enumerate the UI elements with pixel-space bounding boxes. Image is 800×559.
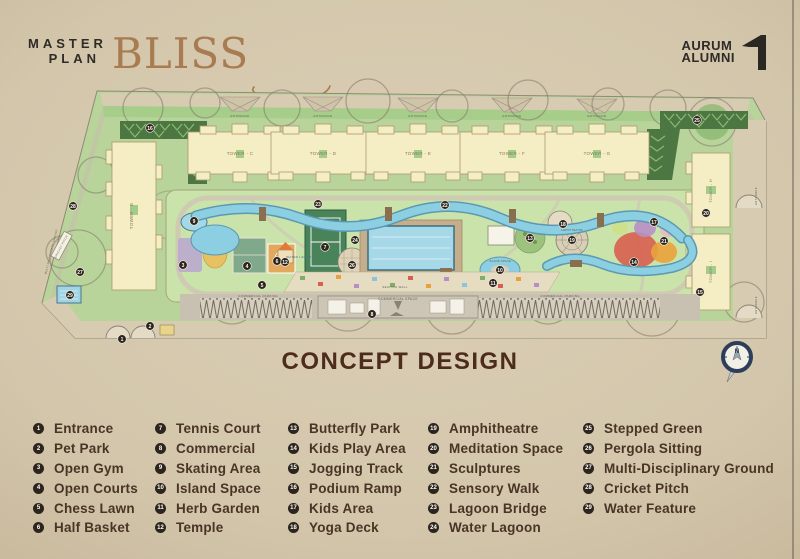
map-marker: 20 xyxy=(702,209,711,218)
legend-item-label: Kids Area xyxy=(309,501,373,516)
map-marker: 8 xyxy=(368,310,377,319)
map-marker: 4 xyxy=(243,262,252,271)
svg-text:13: 13 xyxy=(527,236,533,242)
legend-item: 1Entrance xyxy=(33,419,138,439)
legend-item: 15Jogging Track xyxy=(288,459,406,479)
svg-text:4: 4 xyxy=(246,264,249,270)
map-marker: 21 xyxy=(660,237,669,246)
legend-item-label: Cricket Pitch xyxy=(604,481,689,496)
svg-text:29: 29 xyxy=(67,293,73,299)
svg-text:8: 8 xyxy=(371,312,374,318)
svg-text:15: 15 xyxy=(697,290,703,296)
legend-item: 19Amphitheatre xyxy=(428,419,563,439)
legend-item: 14Kids Play Area xyxy=(288,439,406,459)
svg-text:11: 11 xyxy=(490,281,496,287)
legend-item-label: Jogging Track xyxy=(309,461,403,476)
legend-item-label: Water Lagoon xyxy=(449,520,541,535)
map-label: COMMERCIAL PARKING xyxy=(238,294,278,298)
legend-number-bullet: 15 xyxy=(288,463,299,474)
svg-text:7: 7 xyxy=(324,245,327,251)
legend-item: 6Half Basket xyxy=(33,518,138,538)
legend-number-bullet: 8 xyxy=(155,443,166,454)
legend-number-bullet: 18 xyxy=(288,522,299,533)
map-marker: 24 xyxy=(351,236,360,245)
map-marker: 27 xyxy=(76,268,85,277)
legend-column: 19Amphitheatre20Meditation Space21Sculpt… xyxy=(428,419,563,538)
legend-item: 25Stepped Green xyxy=(583,419,774,439)
legend-number-bullet: 22 xyxy=(428,483,439,494)
right-edge-line xyxy=(792,0,794,559)
legend-item-label: Pet Park xyxy=(54,441,110,456)
commercial-parking-right xyxy=(478,298,660,318)
legend-item: 5Chess Lawn xyxy=(33,498,138,518)
legend-number-bullet: 26 xyxy=(583,443,594,454)
map-marker: 3 xyxy=(179,261,188,270)
legend-item: 16Podium Ramp xyxy=(288,478,406,498)
legend-item-label: Multi-Disciplinary Ground xyxy=(604,461,774,476)
svg-text:20: 20 xyxy=(703,211,709,217)
map-marker: 22 xyxy=(441,201,450,210)
legend-number-bullet: 29 xyxy=(583,503,594,514)
legend-item: 23Lagoon Bridge xyxy=(428,498,563,518)
map-marker: 19 xyxy=(568,236,577,245)
svg-text:2: 2 xyxy=(149,324,152,330)
legend-item-label: Island Space xyxy=(176,481,261,496)
map-marker: 29 xyxy=(66,291,75,300)
legend-item-label: Chess Lawn xyxy=(54,501,135,516)
map-label: WATER LAGOON xyxy=(286,255,314,259)
legend-item: 22Sensory Walk xyxy=(428,478,563,498)
legend-item-label: Water Feature xyxy=(604,501,696,516)
lagoon-pond xyxy=(191,225,239,255)
legend-item-label: Meditation Space xyxy=(449,441,563,456)
map-marker: 12 xyxy=(281,258,290,267)
svg-text:22: 22 xyxy=(442,203,448,209)
map-label: ENTRANCE xyxy=(231,114,250,118)
map-label: TOWER - F xyxy=(499,151,525,156)
map-label: AMPHITHEATRE xyxy=(561,229,583,232)
legend-number-bullet: 14 xyxy=(288,443,299,454)
svg-text:10: 10 xyxy=(497,268,503,274)
legend-number-bullet: 4 xyxy=(33,483,44,494)
map-marker: 2 xyxy=(146,322,155,331)
clubhouse xyxy=(488,226,514,245)
legend-item-label: Butterfly Park xyxy=(309,421,400,436)
legend-column: 25Stepped Green26Pergola Sitting27Multi-… xyxy=(583,419,774,518)
legend-number-bullet: 5 xyxy=(33,503,44,514)
legend-item: 24Water Lagoon xyxy=(428,518,563,538)
svg-text:17: 17 xyxy=(651,220,657,226)
map-label: TOWER - C xyxy=(227,151,254,156)
tower-b xyxy=(106,142,162,290)
map-label: COMMERCIAL PARKING xyxy=(540,294,580,298)
svg-text:5: 5 xyxy=(261,283,264,289)
svg-text:26: 26 xyxy=(349,263,355,269)
map-marker: 15 xyxy=(696,288,705,297)
map-label: ENTRANCE xyxy=(754,187,758,205)
legend-number-bullet: 1 xyxy=(33,423,44,434)
legend-number-bullet: 23 xyxy=(428,503,439,514)
legend-item: 10Island Space xyxy=(155,478,261,498)
legend-item-label: Open Gym xyxy=(54,461,124,476)
legend-item-label: Commercial xyxy=(176,441,255,456)
legend-item-label: Lagoon Bridge xyxy=(449,501,547,516)
legend-item: 11Herb Garden xyxy=(155,498,261,518)
legend-item-label: Open Courts xyxy=(54,481,138,496)
svg-text:23: 23 xyxy=(315,202,321,208)
legend-item-label: Sensory Walk xyxy=(449,481,539,496)
legend-item: 28Cricket Pitch xyxy=(583,478,774,498)
map-marker: 7 xyxy=(321,243,330,252)
legend-item-label: Sculptures xyxy=(449,461,521,476)
svg-text:25: 25 xyxy=(694,118,700,124)
legend-number-bullet: 21 xyxy=(428,463,439,474)
map-marker: 18 xyxy=(559,220,568,229)
legend-column: 1Entrance2Pet Park3Open Gym4Open Courts5… xyxy=(33,419,138,538)
legend-number-bullet: 13 xyxy=(288,423,299,434)
legend-number-bullet: 27 xyxy=(583,463,594,474)
legend-item: 27Multi-Disciplinary Ground xyxy=(583,459,774,479)
legend-item: 20Meditation Space xyxy=(428,439,563,459)
map-marker: 14 xyxy=(630,258,639,267)
map-label: TOWER - I xyxy=(708,261,713,283)
svg-text:12: 12 xyxy=(282,260,288,266)
legend-number-bullet: 11 xyxy=(155,503,166,514)
legend-number-bullet: 6 xyxy=(33,522,44,533)
commercial-parking-left xyxy=(200,298,312,318)
legend-number-bullet: 12 xyxy=(155,522,166,533)
legend-item: 29Water Feature xyxy=(583,498,774,518)
legend-number-bullet: 24 xyxy=(428,522,439,533)
map-marker: 9 xyxy=(190,217,199,226)
sensory-walk xyxy=(284,272,560,292)
svg-text:9: 9 xyxy=(193,219,196,225)
legend-item-label: Temple xyxy=(176,520,223,535)
map-label: TOWER - D xyxy=(310,151,337,156)
map-label: ISLAND SPACE xyxy=(489,259,511,263)
map-marker: 16 xyxy=(146,124,155,133)
map-marker: 17 xyxy=(650,218,659,227)
legend-item: 7Tennis Court xyxy=(155,419,261,439)
legend: 1Entrance2Pet Park3Open Gym4Open Courts5… xyxy=(0,419,800,549)
map-label: ENTRANCE xyxy=(588,114,607,118)
svg-text:21: 21 xyxy=(661,239,667,245)
legend-column: 13Butterfly Park14Kids Play Area15Joggin… xyxy=(288,419,406,538)
legend-item-label: Amphitheatre xyxy=(449,421,538,436)
map-marker: 26 xyxy=(348,261,357,270)
legend-item-label: Entrance xyxy=(54,421,113,436)
map-marker: 11 xyxy=(489,279,498,288)
map-label: ENTRANCE xyxy=(409,114,428,118)
svg-text:28: 28 xyxy=(70,204,76,210)
legend-item-label: Herb Garden xyxy=(176,501,260,516)
svg-text:27: 27 xyxy=(77,270,83,276)
svg-text:3: 3 xyxy=(182,263,185,269)
legend-item: 21Sculptures xyxy=(428,459,563,479)
legend-item: 18Yoga Deck xyxy=(288,518,406,538)
map-label: TOWER - B xyxy=(129,203,134,229)
legend-item-label: Yoga Deck xyxy=(309,520,379,535)
legend-item-label: Kids Play Area xyxy=(309,441,406,456)
legend-number-bullet: 19 xyxy=(428,423,439,434)
map-marker: 1 xyxy=(118,335,127,344)
legend-number-bullet: 25 xyxy=(583,423,594,434)
map-marker: 10 xyxy=(496,266,505,275)
map-label: TOWER - H xyxy=(708,179,713,203)
legend-number-bullet: 10 xyxy=(155,483,166,494)
legend-number-bullet: 9 xyxy=(155,463,166,474)
legend-item-label: Half Basket xyxy=(54,520,130,535)
legend-number-bullet: 28 xyxy=(583,483,594,494)
gate-booth xyxy=(160,325,174,335)
map-marker: 6 xyxy=(273,257,282,266)
svg-text:16: 16 xyxy=(147,126,153,132)
legend-number-bullet: 2 xyxy=(33,443,44,454)
map-label: TOWER - G xyxy=(584,151,611,156)
legend-number-bullet: 3 xyxy=(33,463,44,474)
legend-item: 17Kids Area xyxy=(288,498,406,518)
map-label: ENTRANCE xyxy=(314,114,333,118)
legend-item: 8Commercial xyxy=(155,439,261,459)
map-label: ENTRANCE xyxy=(754,296,758,314)
legend-item: 3Open Gym xyxy=(33,459,138,479)
legend-number-bullet: 16 xyxy=(288,483,299,494)
map-marker: 25 xyxy=(693,116,702,125)
map-marker: 23 xyxy=(314,200,323,209)
map-marker: 28 xyxy=(69,202,78,211)
map-label: COMMERCIAL SPACE xyxy=(378,297,418,301)
legend-item-label: Skating Area xyxy=(176,461,260,476)
legend-number-bullet: 17 xyxy=(288,503,299,514)
map-marker: 13 xyxy=(526,234,535,243)
legend-number-bullet: 20 xyxy=(428,443,439,454)
legend-item-label: Podium Ramp xyxy=(309,481,402,496)
legend-item-label: Tennis Court xyxy=(176,421,261,436)
legend-item: 4Open Courts xyxy=(33,478,138,498)
svg-text:1: 1 xyxy=(121,337,124,343)
svg-text:6: 6 xyxy=(276,259,279,265)
legend-item-label: Stepped Green xyxy=(604,421,703,436)
map-label: SEATING WALL xyxy=(382,285,407,289)
svg-text:18: 18 xyxy=(560,222,566,228)
legend-item: 9Skating Area xyxy=(155,459,261,479)
legend-item: 12Temple xyxy=(155,518,261,538)
legend-number-bullet: 7 xyxy=(155,423,166,434)
legend-item-label: Pergola Sitting xyxy=(604,441,702,456)
map-label: TOWER - E xyxy=(405,151,431,156)
svg-text:19: 19 xyxy=(569,238,575,244)
svg-text:24: 24 xyxy=(352,238,358,244)
svg-text:14: 14 xyxy=(631,260,637,266)
legend-item: 2Pet Park xyxy=(33,439,138,459)
legend-column: 7Tennis Court8Commercial9Skating Area10I… xyxy=(155,419,261,538)
legend-item: 13Butterfly Park xyxy=(288,419,406,439)
map-label: ENTRANCE xyxy=(503,114,522,118)
legend-item: 26Pergola Sitting xyxy=(583,439,774,459)
concept-design-title: CONCEPT DESIGN xyxy=(0,348,800,376)
map-marker: 5 xyxy=(258,281,267,290)
